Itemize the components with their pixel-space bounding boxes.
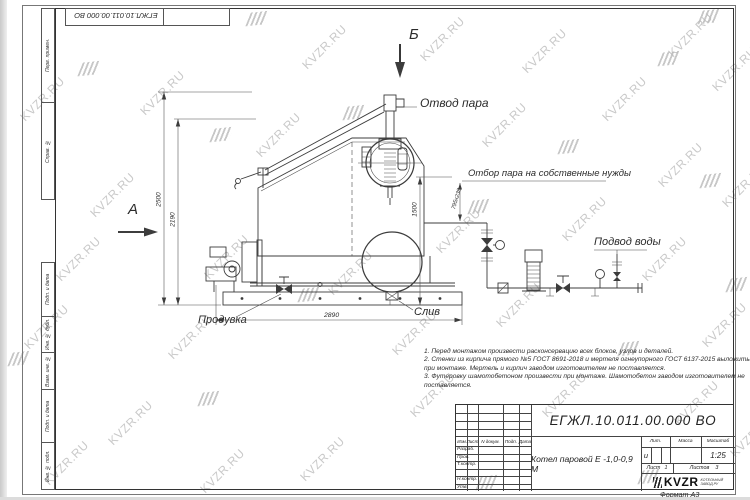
feedwater-piping [487, 250, 642, 296]
tb-lit-label: Лит. [641, 436, 670, 447]
page-edge-left [0, 0, 7, 500]
tb-sheets: Листов 3 [673, 463, 735, 473]
dim-height-takeoff: 1500 [412, 195, 419, 225]
label-blowdown: Продувка [198, 314, 247, 326]
label-steam-takeoff: Отбор пара на собственные нужды [468, 168, 631, 179]
label-steam-outlet: Отвод пара [420, 96, 489, 110]
dim-height-total: 2500 [156, 185, 163, 215]
dim-height-casing: 2190 [170, 205, 177, 235]
tb-row-utv: Утв. [456, 484, 479, 492]
foundation-skid [223, 292, 462, 305]
title-block: Изм Лист N докум. Подп. Дата Разраб. Про… [455, 404, 734, 490]
tb-lit-value: и [641, 447, 651, 463]
kvzr-logo-subtext: КОТЕЛЬНЫЙ ЗАВОД.РУ [701, 478, 724, 486]
tb-doc-number: ЕГЖЛ.10.011.00.000 ВО [531, 405, 735, 436]
leader-lines [236, 107, 647, 317]
note-line: 2. Стенки из кирпича прямого №5 ГОСТ 869… [424, 356, 732, 364]
label-drain: Слив [414, 306, 440, 318]
manhole-drum-end [362, 232, 422, 305]
tb-header-izm: Изм [456, 436, 467, 446]
boiler-body [258, 138, 424, 256]
tb-product-name: Котел паровой Е -1,0-0,9 М [531, 436, 641, 491]
tb-mass-label: Масса [670, 436, 701, 447]
kvzr-logo-stripes-icon [653, 477, 662, 488]
tb-sheets-value: 3 [715, 465, 718, 471]
tb-sheet-label: Лист [647, 465, 661, 471]
note-line: 1. Перед монтажом произвести расконсерва… [424, 348, 732, 356]
tb-scale-label: Масштаб [701, 436, 735, 447]
tb-header-date: Дата [519, 436, 531, 446]
kvzr-logo-subtext-line2: ЗАВОД.РУ [701, 482, 724, 486]
burner-unit [206, 240, 262, 292]
tb-header-doc: N докум. [478, 436, 503, 446]
tb-header-list: Лист [467, 436, 478, 446]
technical-notes: 1. Перед монтажом произвести расконсерва… [424, 348, 732, 390]
blueprint-page: KVZR.RUKVZR.RUKVZR.RUKVZR.RUKVZR.RUKVZR.… [0, 0, 750, 500]
dim-length: 2890 [324, 312, 339, 319]
tb-row-nkontr: Н.контр. [456, 476, 479, 484]
steam-takeoff-piping [424, 223, 505, 288]
note-line: поставляется. [424, 382, 732, 390]
note-line: при монтаже. Мертель и кирпич заводом из… [424, 365, 732, 373]
tb-sheet-value: 1 [664, 465, 667, 471]
tb-row-tkontr: Т.контр. [456, 461, 479, 469]
tb-scale-value: 1:25 [701, 447, 735, 463]
kvzr-logo-word: KVZR [664, 475, 699, 489]
davit-mast [235, 104, 386, 189]
tb-sheet: Лист 1 [641, 463, 673, 473]
tb-logo-cell: KVZR КОТЕЛЬНЫЙ ЗАВОД.РУ [641, 473, 735, 491]
section-mark-b: Б [409, 26, 419, 43]
steam-drum-assembly [358, 95, 422, 205]
tb-row-razrab: Разраб. [456, 446, 479, 454]
tb-header-sign: Подп. [503, 436, 519, 446]
section-mark-a: А [128, 201, 138, 218]
label-water-inlet: Подвод воды [594, 236, 661, 248]
tb-sheets-label: Листов [690, 465, 710, 471]
blowdown-piping [250, 256, 455, 294]
note-line: 3. Футеровку шамотобетоном произвести пр… [424, 373, 732, 381]
tb-row-prov: Пров. [456, 454, 479, 462]
